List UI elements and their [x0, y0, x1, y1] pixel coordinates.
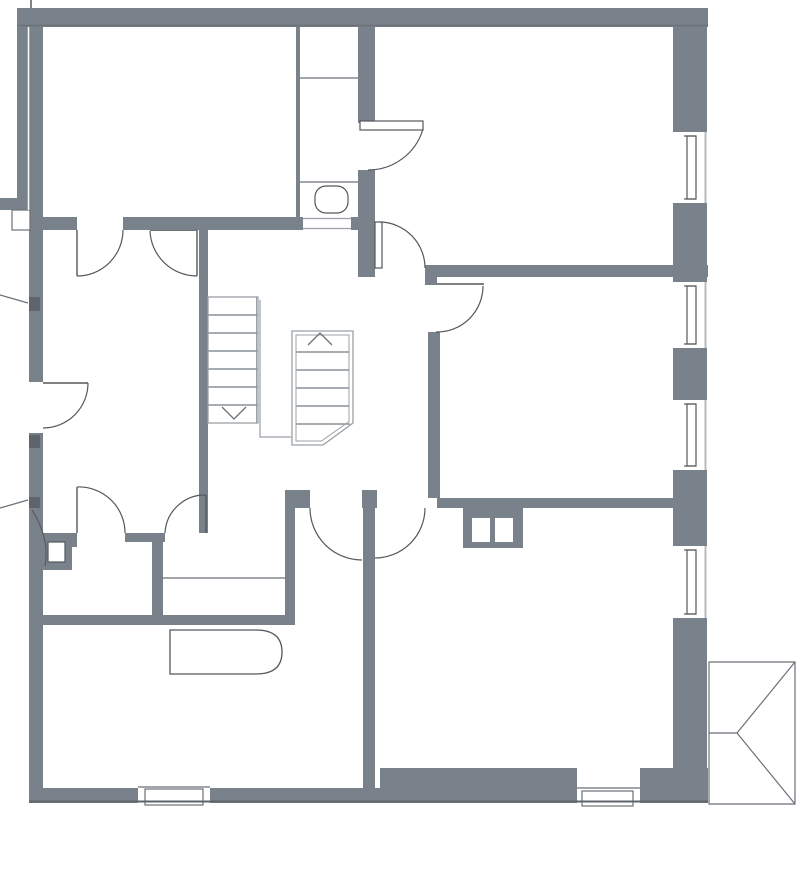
leftwall-jamb-block-2	[29, 435, 40, 448]
terrain-line-lower	[0, 500, 28, 508]
door-arc-entrance-room	[375, 508, 425, 558]
leftwall-jamb-block-3	[29, 497, 40, 508]
smallrooms-bottom-wall	[40, 615, 295, 625]
exterior-step-topleft	[12, 210, 30, 230]
stair-hall-wall	[199, 230, 208, 533]
midright-room-bottom-wall	[437, 498, 673, 508]
window-right-3-frame	[687, 404, 696, 466]
toilet-bowl	[315, 186, 348, 213]
chimney-flue-2	[495, 518, 513, 542]
wc-bottom-wall-stub	[351, 217, 358, 230]
door-arc-topleft-room	[77, 230, 123, 276]
door-wc-leaf	[360, 121, 423, 130]
stair-connector-line	[260, 300, 291, 437]
door-arc-wc	[368, 129, 423, 170]
chimney-flue-1	[472, 518, 490, 542]
window-right-4-frame	[687, 550, 696, 614]
midright-room-left-wall	[428, 332, 440, 498]
shaft-frame-step	[72, 535, 77, 547]
bath-passage-wall-cap	[362, 490, 377, 508]
window-bottom-sill	[145, 789, 203, 805]
window-right-1-frame	[687, 136, 696, 199]
leftwall-jamb-block-1	[29, 297, 40, 311]
wc-right-wall-upper	[358, 27, 375, 123]
floor-plan-page	[0, 0, 801, 874]
topleft-room-bottom-wall-b	[123, 217, 303, 230]
floor-plan-svg	[0, 0, 801, 874]
shaft-inner	[48, 542, 65, 562]
left-party-wall	[17, 8, 28, 210]
terrain-line-upper	[0, 295, 28, 303]
bathtub	[170, 630, 282, 674]
door-arc-smallroom-left	[77, 487, 125, 533]
wc-partition-wall	[296, 27, 300, 218]
door-arc-topright-room	[380, 222, 425, 268]
midright-room-doorjamb-stub	[425, 277, 437, 285]
door-arc-bath-passage	[310, 508, 362, 560]
wc-right-wall-lower	[358, 170, 375, 277]
topright-room-bottom-wall	[425, 265, 708, 277]
smallrooms-divider-wall	[152, 542, 163, 617]
door-topright-leaf	[375, 222, 382, 268]
smallrooms-right-wall-stub	[285, 490, 310, 508]
door-arc-leftwall	[43, 383, 88, 428]
smallrooms-right-wall	[285, 490, 295, 625]
topleft-room-bottom-wall-a	[42, 217, 77, 230]
bath-passage-wall	[363, 508, 375, 788]
door-arc-hall-left	[150, 231, 197, 276]
door-arc-midright-room	[436, 286, 483, 332]
bay-roof-hips	[737, 662, 795, 804]
top-exterior-wall	[17, 8, 708, 27]
left-party-wall-return	[0, 198, 17, 210]
livingroom-bottom-wall-b	[125, 533, 165, 542]
bottom-exterior-wall-right	[380, 768, 708, 803]
window-right-2-frame	[687, 286, 696, 344]
leftwall-door-opening	[29, 382, 43, 433]
exterior-entry-step	[582, 791, 633, 806]
